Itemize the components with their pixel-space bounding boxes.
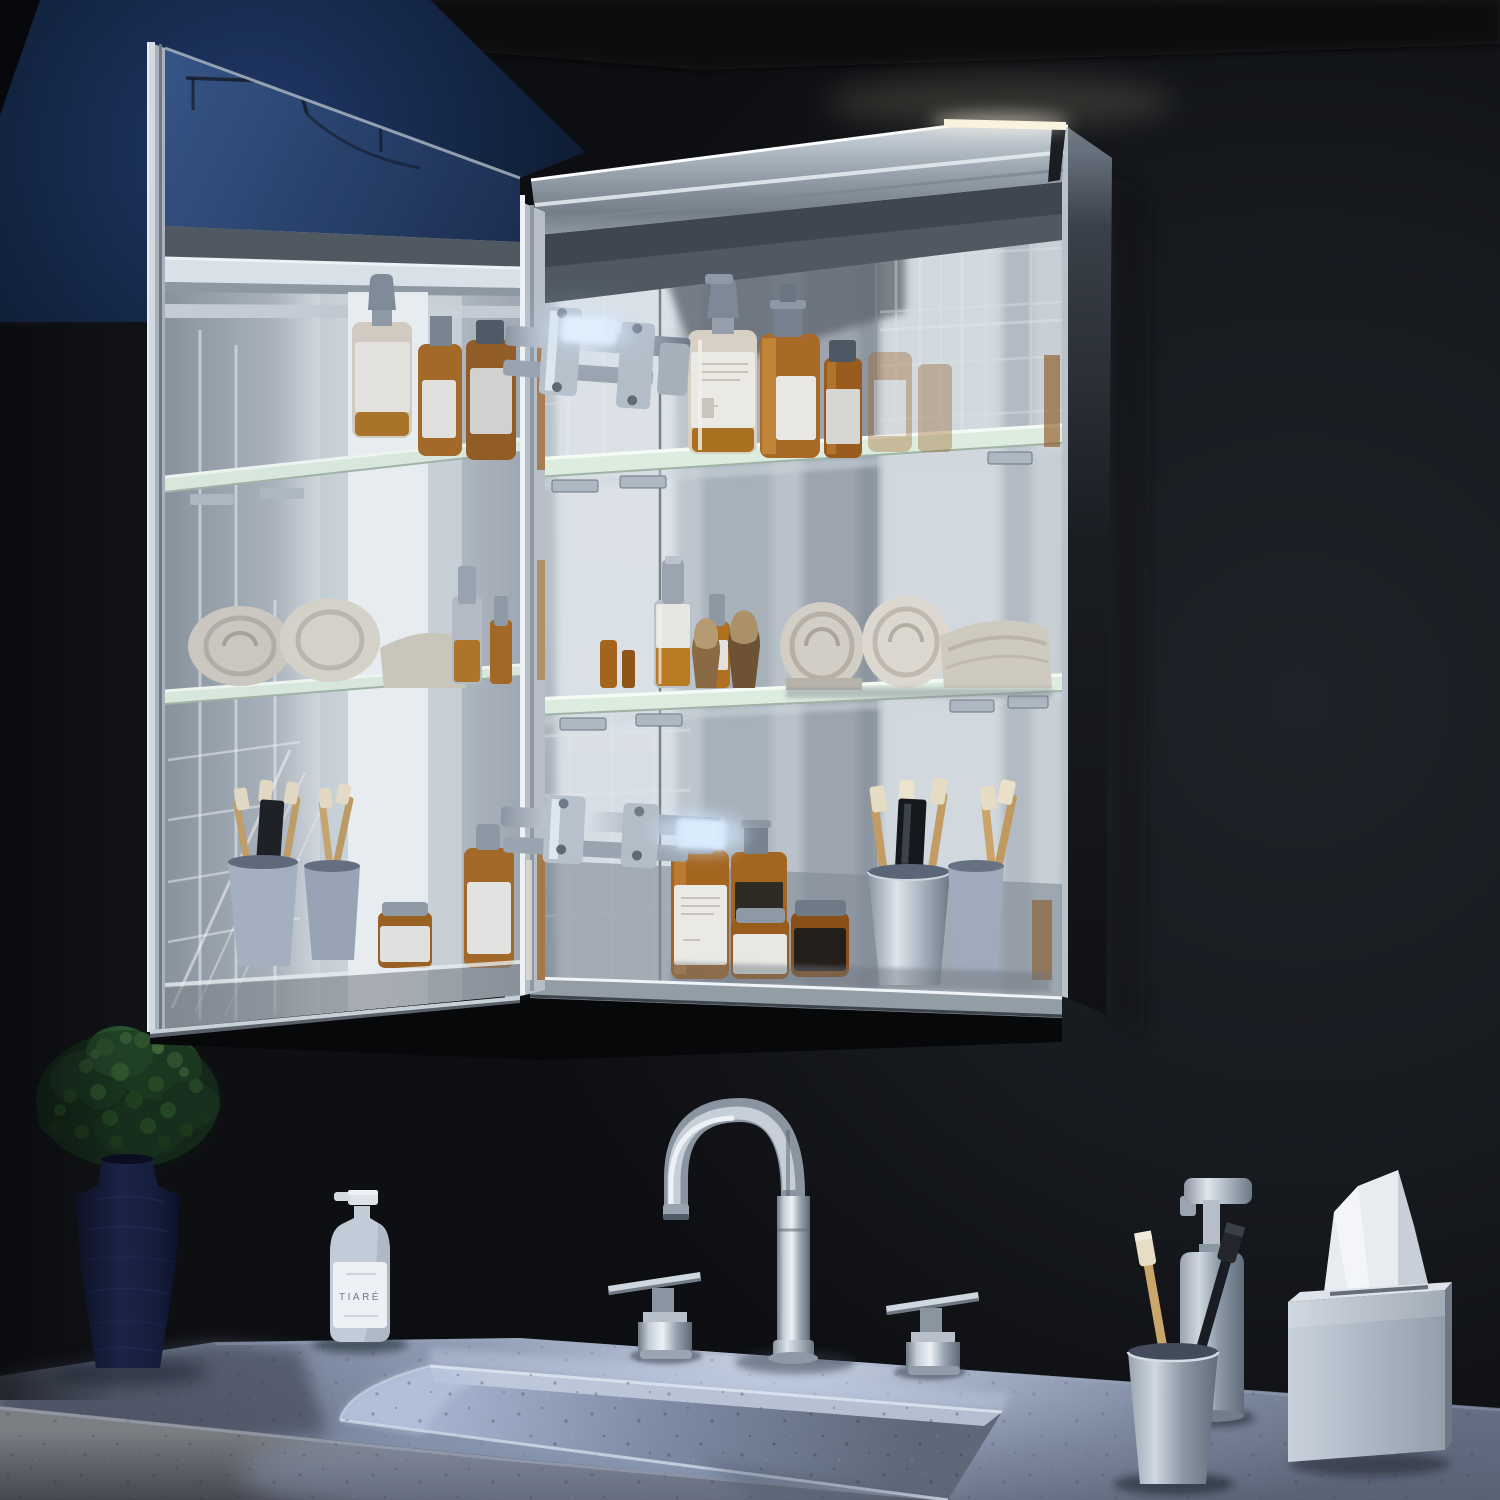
svg-text:TIARÉ: TIARÉ [339, 1290, 381, 1303]
